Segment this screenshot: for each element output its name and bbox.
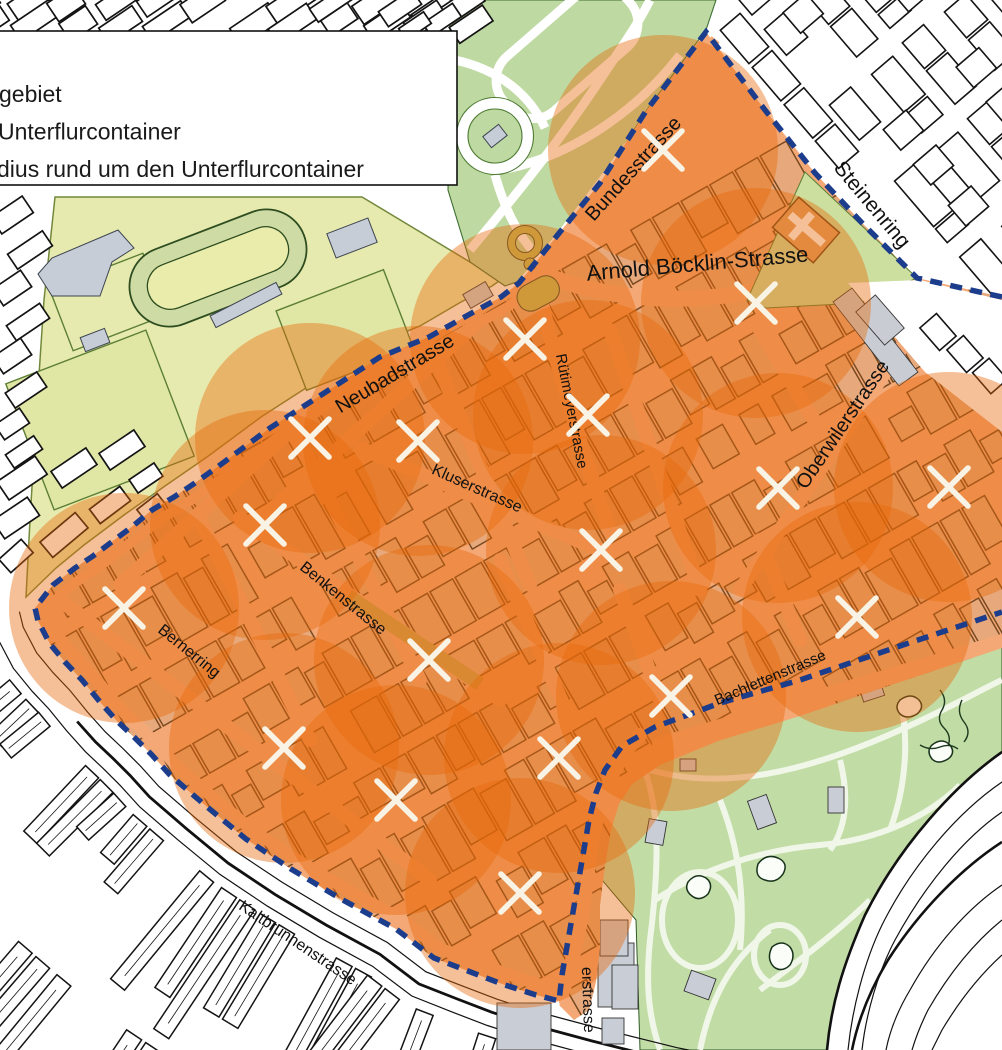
svg-text:Unterflurcontainer: Unterflurcontainer: [0, 119, 181, 145]
svg-text:erstrasse: erstrasse: [578, 967, 597, 1033]
svg-text:gebiet: gebiet: [0, 81, 62, 107]
svg-text:dius rund um den Unterflurcont: dius rund um den Unterflurcontainer: [0, 156, 364, 182]
